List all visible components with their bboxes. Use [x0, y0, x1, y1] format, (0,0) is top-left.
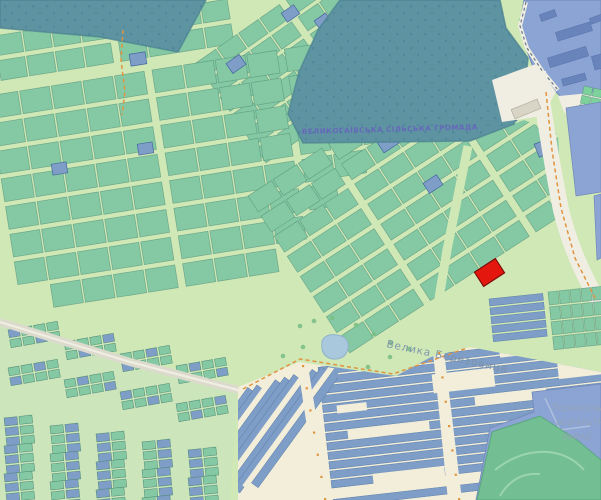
parcel[interactable] [142, 469, 156, 478]
parcel[interactable] [27, 52, 57, 76]
parcel[interactable] [56, 109, 89, 136]
parcel-number-marker [309, 409, 311, 411]
parcel[interactable] [77, 376, 89, 386]
tree-icon [354, 323, 359, 328]
parcel[interactable] [5, 483, 19, 492]
parcel[interactable] [46, 252, 79, 279]
parcel[interactable] [105, 215, 138, 242]
parcel[interactable] [6, 437, 20, 446]
parcel[interactable] [97, 471, 111, 480]
parcel[interactable] [220, 83, 253, 110]
parcel[interactable] [158, 383, 170, 393]
parcel[interactable] [21, 435, 35, 444]
parcel[interactable] [190, 469, 204, 478]
svg-text:Тернопільський: Тернопільський [552, 403, 601, 414]
parcel[interactable] [64, 164, 97, 191]
parcel[interactable] [189, 459, 203, 468]
parcel[interactable] [0, 56, 28, 80]
parcel[interactable] [6, 493, 20, 500]
parcel[interactable] [189, 487, 203, 496]
parcel[interactable] [113, 270, 146, 297]
parcel[interactable] [66, 388, 78, 398]
parcel[interactable] [136, 210, 169, 237]
parcel[interactable] [205, 467, 219, 476]
parcel[interactable] [19, 415, 33, 424]
parcel[interactable] [174, 204, 207, 231]
parcel[interactable] [34, 362, 46, 372]
tree-icon [301, 345, 306, 350]
parcel[interactable] [21, 364, 33, 374]
parcel[interactable] [10, 376, 22, 386]
parcel[interactable] [188, 88, 221, 115]
svg-text:асфальтний: асфальтний [556, 417, 601, 428]
tree-icon [372, 332, 377, 337]
parcel[interactable] [573, 318, 584, 332]
parcel[interactable] [51, 81, 84, 108]
parcel[interactable] [156, 93, 189, 120]
parcel[interactable] [559, 290, 570, 304]
parcel[interactable] [5, 427, 19, 436]
parcel[interactable] [37, 197, 70, 224]
parcel[interactable] [20, 453, 34, 462]
parcel[interactable] [14, 257, 47, 284]
parcel[interactable] [66, 350, 78, 360]
parcel[interactable] [160, 393, 172, 403]
parcel[interactable] [176, 402, 188, 412]
parcel[interactable] [66, 433, 80, 442]
parcel[interactable] [159, 459, 173, 468]
parcel[interactable] [188, 449, 202, 458]
parcel[interactable] [66, 461, 80, 470]
parcel[interactable] [73, 220, 106, 247]
parcel[interactable] [141, 237, 174, 264]
parcel[interactable] [69, 192, 102, 219]
parcel[interactable] [19, 443, 33, 452]
parcel[interactable] [96, 159, 129, 186]
parcel[interactable] [19, 471, 33, 480]
parcel[interactable] [90, 336, 102, 346]
parcel[interactable] [96, 489, 110, 498]
parcel-number-marker [441, 376, 443, 378]
parcel-number-marker [445, 401, 447, 403]
parcel[interactable] [584, 317, 595, 331]
parcel[interactable] [102, 371, 114, 381]
parcel[interactable] [50, 280, 83, 307]
parcel[interactable] [79, 386, 91, 396]
parcel-blue[interactable] [129, 52, 147, 66]
parcel[interactable] [4, 417, 18, 426]
parcel[interactable] [10, 230, 43, 257]
parcel-number-marker [451, 449, 453, 451]
parcel[interactable] [77, 247, 110, 274]
parcel[interactable] [0, 147, 30, 174]
parcel[interactable] [100, 187, 133, 214]
parcel[interactable] [91, 383, 103, 393]
parcel[interactable] [216, 367, 228, 377]
parcel[interactable] [111, 487, 125, 496]
tree-icon [281, 354, 286, 359]
tree-icon [298, 324, 303, 329]
parcel[interactable] [20, 425, 34, 434]
tree-icon [330, 316, 335, 321]
parcel[interactable] [205, 199, 238, 226]
parcel[interactable] [133, 350, 145, 360]
parcel[interactable] [146, 386, 158, 396]
parcel[interactable] [51, 435, 65, 444]
parcel[interactable] [570, 289, 581, 303]
parcel[interactable] [0, 32, 24, 56]
parcel[interactable] [128, 154, 161, 181]
parcel[interactable] [4, 445, 18, 454]
parcel[interactable] [147, 395, 159, 405]
parcel[interactable] [204, 457, 218, 466]
parcel[interactable] [152, 65, 185, 92]
parcel[interactable] [550, 306, 561, 320]
parcel[interactable] [214, 254, 247, 281]
parcel[interactable] [214, 395, 226, 405]
parcel[interactable] [161, 121, 194, 148]
parcel[interactable] [120, 390, 132, 400]
parcel[interactable] [246, 249, 279, 276]
parcel[interactable] [66, 489, 80, 498]
parcel[interactable] [92, 132, 125, 159]
parcel[interactable] [247, 50, 280, 77]
parcel[interactable] [551, 321, 562, 335]
parcel[interactable] [98, 453, 112, 462]
parcel[interactable] [10, 338, 22, 348]
parcel[interactable] [23, 336, 35, 346]
parcel[interactable] [203, 407, 215, 417]
parcel[interactable] [64, 378, 76, 388]
parcel[interactable] [548, 291, 559, 305]
parcel[interactable] [582, 86, 592, 96]
parcel[interactable] [0, 91, 21, 118]
parcel[interactable] [203, 447, 217, 456]
parcel[interactable] [109, 242, 142, 269]
parcel[interactable] [593, 301, 601, 315]
parcel[interactable] [111, 459, 125, 468]
parcel[interactable] [96, 461, 110, 470]
parcel-number-marker [320, 476, 322, 478]
parcel[interactable] [112, 469, 126, 478]
parcel[interactable] [582, 302, 593, 316]
parcel[interactable] [158, 345, 170, 355]
parcel[interactable] [20, 86, 53, 113]
parcel[interactable] [104, 381, 116, 391]
parcel[interactable] [192, 116, 225, 143]
parcel[interactable] [178, 231, 211, 258]
parcel[interactable] [575, 333, 586, 347]
parcel[interactable] [183, 259, 216, 286]
parcel[interactable] [586, 332, 597, 346]
parcel[interactable] [51, 491, 65, 500]
parcel[interactable] [202, 398, 214, 408]
parcel[interactable] [35, 371, 47, 381]
parcel[interactable] [42, 225, 75, 252]
parcel[interactable] [564, 335, 575, 349]
parcel[interactable] [158, 477, 172, 486]
parcel[interactable] [24, 114, 57, 141]
parcel[interactable] [562, 320, 573, 334]
parcel[interactable] [592, 286, 601, 300]
parcel[interactable] [65, 479, 79, 488]
parcel[interactable] [165, 148, 198, 175]
parcel[interactable] [157, 439, 171, 448]
parcel[interactable] [50, 481, 64, 490]
parcel[interactable] [201, 171, 234, 198]
parcel[interactable] [256, 106, 289, 133]
parcel[interactable] [98, 481, 112, 490]
parcel[interactable] [203, 475, 217, 484]
tree-icon [312, 319, 317, 324]
parcel[interactable] [561, 305, 572, 319]
parcel[interactable] [6, 465, 20, 474]
parcel[interactable] [224, 111, 257, 138]
parcel[interactable] [114, 71, 147, 98]
parcel[interactable] [21, 491, 35, 500]
parcel[interactable] [96, 433, 110, 442]
parcel[interactable] [5, 455, 19, 464]
parcel[interactable] [191, 410, 203, 420]
parcel[interactable] [214, 357, 226, 367]
parcel[interactable] [83, 76, 116, 103]
parcel[interactable] [595, 316, 601, 330]
parcel[interactable] [111, 431, 125, 440]
parcel[interactable] [204, 485, 218, 494]
parcel[interactable] [1, 174, 34, 201]
blue-strip-parcels [489, 293, 547, 341]
parcel[interactable] [20, 481, 34, 490]
parcel-blue[interactable] [51, 162, 68, 175]
parcel[interactable] [21, 463, 35, 472]
parcel[interactable] [84, 43, 114, 67]
parcel[interactable] [178, 412, 190, 422]
parcel[interactable] [169, 176, 202, 203]
parcel[interactable] [4, 473, 18, 482]
parcel[interactable] [189, 400, 201, 410]
parcel[interactable] [52, 473, 66, 482]
parcel[interactable] [65, 423, 79, 432]
parcel[interactable] [6, 202, 39, 229]
parcel[interactable] [188, 477, 202, 486]
parcel-number-marker [317, 454, 319, 456]
parcel[interactable] [65, 451, 79, 460]
parcel[interactable] [228, 138, 261, 165]
parcel[interactable] [52, 445, 66, 454]
parcel[interactable] [251, 78, 284, 105]
parcel[interactable] [592, 88, 601, 98]
parcel[interactable] [553, 336, 564, 350]
tree-icon [366, 365, 371, 370]
parcel[interactable] [580, 95, 590, 105]
parcel[interactable] [157, 467, 171, 476]
parcel[interactable] [260, 133, 293, 160]
parcel[interactable] [82, 275, 115, 302]
parcel[interactable] [112, 441, 126, 450]
parcel-number-marker [455, 474, 457, 476]
parcel[interactable] [97, 443, 111, 452]
parcel[interactable] [46, 321, 58, 331]
svg-text:завод: завод [562, 431, 591, 442]
parcel[interactable] [133, 388, 145, 398]
parcel[interactable] [145, 265, 178, 292]
parcel-blue[interactable] [137, 142, 154, 155]
parcel[interactable] [142, 441, 156, 450]
parcel[interactable] [23, 374, 35, 384]
parcel[interactable] [184, 60, 217, 87]
parcel[interactable] [51, 463, 65, 472]
parcel[interactable] [50, 425, 64, 434]
parcel[interactable] [210, 226, 243, 253]
parcel-number-marker [448, 425, 450, 427]
parcel[interactable] [122, 400, 134, 410]
pond [322, 335, 349, 359]
parcel[interactable] [143, 479, 157, 488]
parcel[interactable] [160, 355, 172, 365]
parcel[interactable] [46, 359, 58, 369]
parcel[interactable] [87, 104, 120, 131]
parcel[interactable] [216, 405, 228, 415]
parcel-number-marker [306, 387, 308, 389]
parcel-number-marker [313, 432, 315, 434]
parcel[interactable] [67, 443, 81, 452]
parcel[interactable] [113, 479, 127, 488]
parcel[interactable] [146, 348, 158, 358]
parcel[interactable] [144, 461, 158, 470]
teal-area-mid [288, 0, 528, 143]
parcel-number-marker [302, 365, 304, 367]
parcel[interactable] [8, 366, 20, 376]
parcel[interactable] [197, 143, 230, 170]
cadastral-map[interactable]: ВЕЛИКОГАЇВСЬКА СІЛЬСЬКА ГРОМАДА Велика Б… [0, 0, 601, 500]
parcel[interactable] [90, 374, 102, 384]
parcel[interactable] [571, 304, 582, 318]
parcel[interactable] [55, 47, 85, 71]
tree-icon [388, 355, 393, 360]
parcel[interactable] [50, 453, 64, 462]
parcel[interactable] [0, 119, 26, 146]
parcel[interactable] [144, 489, 158, 498]
parcel[interactable] [135, 398, 147, 408]
map-viewport[interactable]: ВЕЛИКОГАЇВСЬКА СІЛЬСЬКА ГРОМАДА Велика Б… [0, 0, 601, 500]
parcel[interactable] [143, 451, 157, 460]
parcel[interactable] [48, 369, 60, 379]
parcel[interactable] [158, 449, 172, 458]
parcel[interactable] [202, 360, 214, 370]
parcel[interactable] [189, 362, 201, 372]
parcel[interactable] [102, 333, 114, 343]
parcel[interactable] [159, 487, 173, 496]
parcel[interactable] [132, 182, 165, 209]
parcel[interactable] [113, 451, 127, 460]
parcel[interactable] [67, 471, 81, 480]
parcel[interactable] [60, 137, 93, 164]
